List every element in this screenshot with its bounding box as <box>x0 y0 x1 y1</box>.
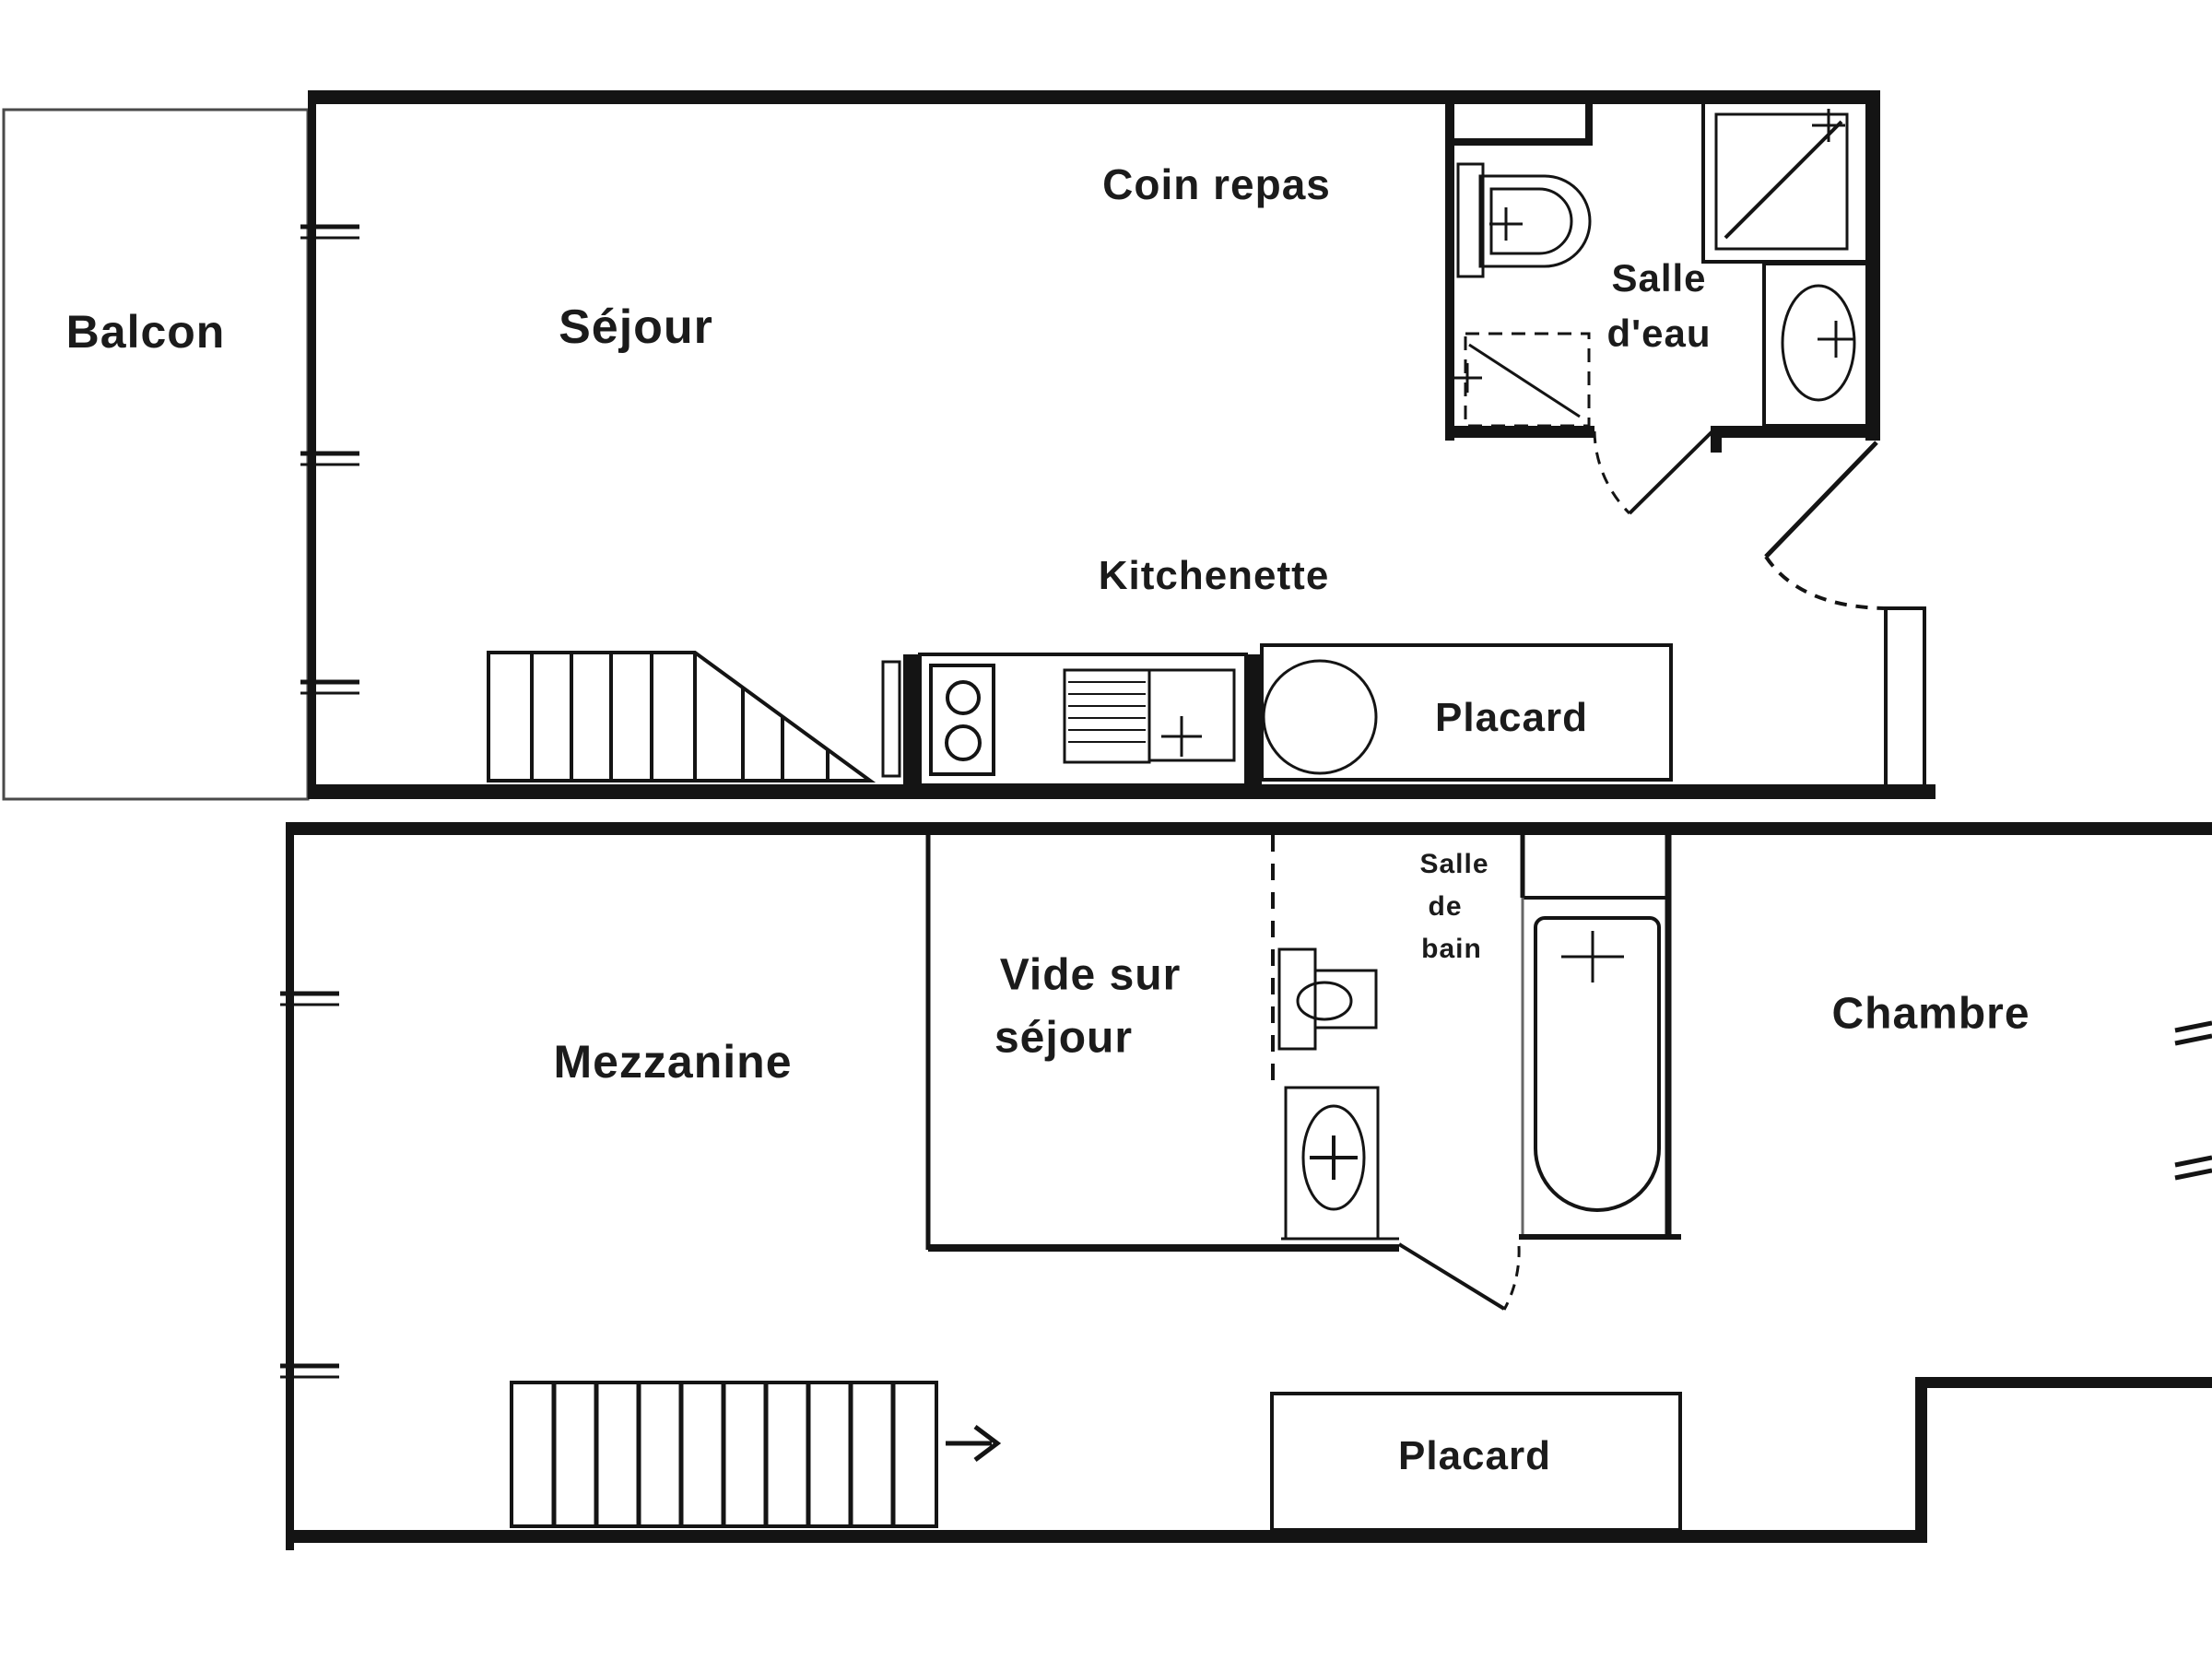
stairs-icon <box>512 1382 936 1526</box>
room-label-salle-eau-1: Salle <box>1611 256 1706 300</box>
washbasin-icon <box>1764 264 1873 426</box>
room-label-placard-upper: Placard <box>1435 695 1588 741</box>
room-label-salle-de-bain-1: Salle <box>1419 849 1488 880</box>
arrow-icon <box>946 1427 997 1460</box>
window-icon <box>2175 1023 2212 1178</box>
door-arc-icon <box>1594 431 1712 513</box>
toilet-icon <box>1458 164 1590 276</box>
balcony-outline <box>4 110 308 799</box>
sink-icon <box>1065 670 1234 762</box>
room-label-placard-lower: Placard <box>1398 1433 1551 1479</box>
floor-plan-drawing <box>0 0 2212 1659</box>
room-label-vide-2: séjour <box>994 1013 1133 1064</box>
room-label-chambre: Chambre <box>1831 989 2030 1040</box>
room-label-mezzanine: Mezzanine <box>553 1035 792 1088</box>
room-label-salle-eau-2: d'eau <box>1606 312 1711 356</box>
cupboard-icon <box>1451 98 1589 142</box>
room-label-salle-de-bain-3: bain <box>1421 934 1482 965</box>
stairs-icon <box>488 653 870 781</box>
shower-icon <box>1703 100 1869 262</box>
water-heater-icon <box>1264 661 1376 773</box>
toilet-icon-lower <box>1279 949 1376 1049</box>
room-label-vide-1: Vide sur <box>1000 950 1182 1001</box>
room-label-balcon: Balcon <box>66 305 226 359</box>
stove-icon <box>931 665 994 774</box>
entry-door-icon <box>1766 442 1924 784</box>
door-arc-icon <box>1399 1244 1519 1310</box>
kitchen-counter <box>883 654 1262 785</box>
step-wall <box>1915 1377 1927 1543</box>
room-label-kitchenette: Kitchenette <box>1099 553 1330 599</box>
floor-plan: Balcon Séjour Coin repas Kitchenette Sal… <box>0 0 2212 1659</box>
bathtub-icon <box>1535 918 1659 1210</box>
washing-machine-icon <box>1453 334 1589 426</box>
outer-walls-lower <box>286 822 2212 1550</box>
room-label-coin-repas: Coin repas <box>1102 159 1331 209</box>
room-label-salle-de-bain-2: de <box>1428 891 1462 923</box>
step-wall <box>1915 1377 2212 1388</box>
room-label-sejour: Séjour <box>559 300 713 355</box>
washbasin-icon-lower <box>1286 1088 1378 1239</box>
